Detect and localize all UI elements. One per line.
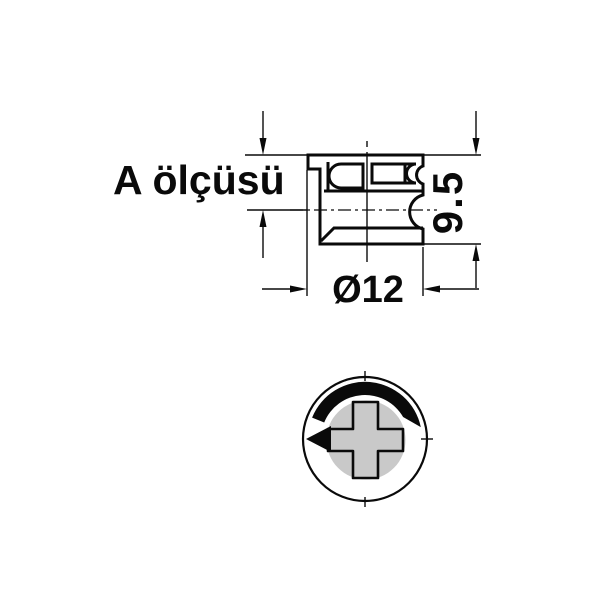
dimension-diameter: Ø12: [262, 269, 479, 311]
dimension-a-label: A ölçüsü: [113, 157, 285, 203]
drawing-canvas: A ölçüsü 9.5 Ø12: [0, 0, 601, 601]
arrow-up-icon: [260, 210, 267, 227]
arrow-left-icon: [423, 286, 440, 293]
arrow-up-icon: [473, 244, 480, 261]
rect-slot-concave-end: [407, 164, 417, 183]
dimension-height: 9.5: [424, 111, 480, 288]
arrow-down-icon: [260, 138, 267, 155]
arrow-right-icon: [290, 286, 307, 293]
technical-drawing: A ölçüsü 9.5 Ø12: [0, 0, 601, 601]
arrow-down-icon: [473, 138, 480, 155]
height-value: 9.5: [424, 170, 471, 234]
bottom-collar: [321, 228, 423, 241]
d-slot: [329, 164, 363, 188]
bottom-view: [303, 371, 433, 507]
diameter-value: Ø12: [332, 269, 404, 311]
dimension-a: A ölçüsü: [113, 111, 285, 258]
